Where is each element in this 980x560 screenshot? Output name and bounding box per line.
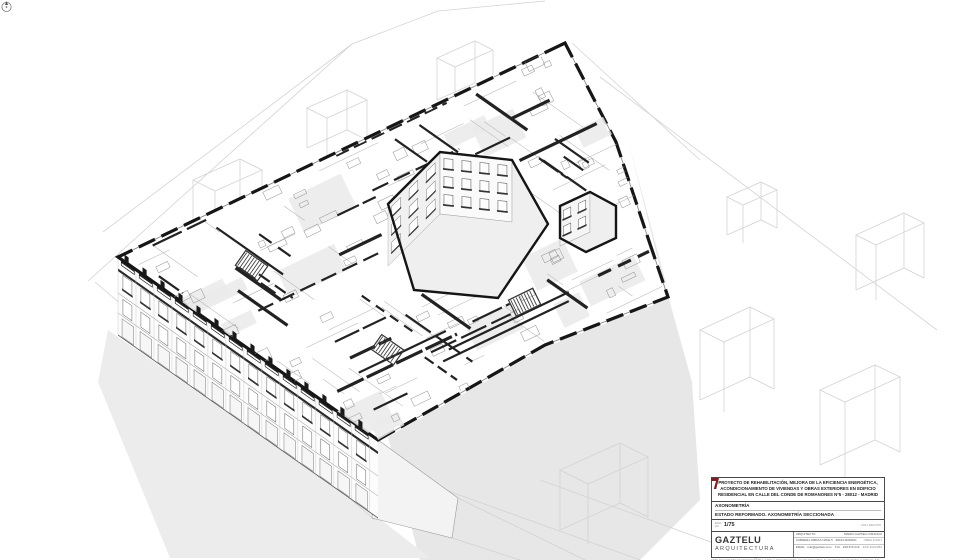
drawing-sheet: PROYECTO DE REHABILITACIÓN, MEJORA DE LA… [0,0,980,560]
firm-contact: ARQUITECTO MARIO GAZTELU FRANCO CABRERA … [793,532,884,557]
drawing-name-section: AXONOMETRÍA ESTADO REFORMADO. AXONOMETRÍ… [712,502,884,520]
north-arrow-icon [0,0,13,13]
firm-row: GAZTELU ARQUITECTURA ARQUITECTO MARIO GA… [712,532,884,557]
contact-exp: EXP 2021/083 [863,546,882,550]
title-block: PROYECTO DE REHABILITACIÓN, MEJORA DE LA… [711,477,885,560]
project-title: PROYECTO DE REHABILITACIÓN, MEJORA DE LA… [712,478,884,502]
drawing-title: ESTADO REFORMADO. AXONOMETRÍA SECCIONADA [715,510,881,518]
contact-label: ARQUITECTO [796,533,816,537]
contact-address: CABRERA OBRAS NAVE 5 · 28014 MADRID [796,539,857,543]
revision-code: 2021.REF.P05 [861,523,881,527]
project-title-line3: RESIDENCIAL EN CALLE DEL CONDE DE ROMANO… [715,492,881,498]
firm-subtitle: ARQUITECTURA [715,546,775,552]
gaztelu-logo-mark-icon [711,477,720,490]
contact-phone: TLF · 918 670 219 [835,546,860,550]
firm-name: GAZTELU [715,536,775,545]
drawing-category: AXONOMETRÍA [715,503,881,508]
scale-value: 1/75 [724,522,735,528]
contact-obra: OBRA 4/2021 [864,539,882,543]
scale-label: ESC. A3 [715,522,722,529]
contact-architect: MARIO GAZTELU FRANCO [844,533,882,537]
axonometric-drawing [0,0,980,560]
contact-email: EMAIL · info@gaztelu.com [796,546,832,550]
firm-logo: GAZTELU ARQUITECTURA [712,532,793,557]
scale-row: ESC. A3 1/75 2021.REF.P05 [712,520,884,532]
